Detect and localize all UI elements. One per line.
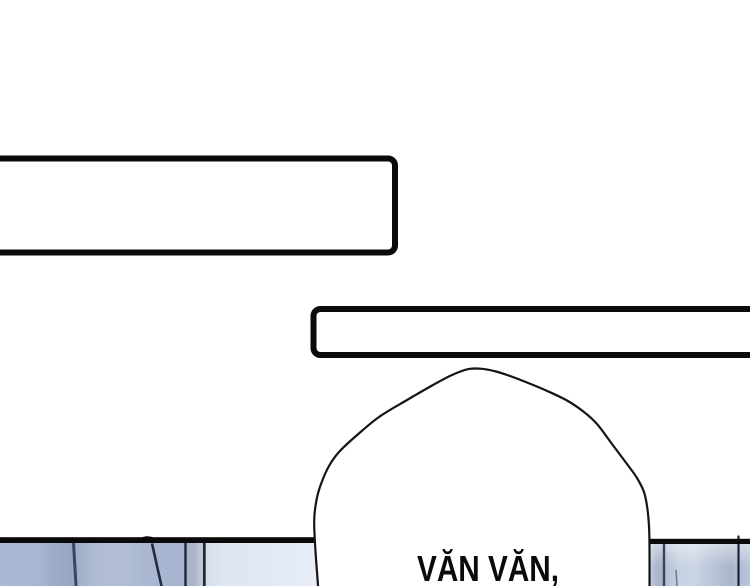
svg-text:VĂN VĂN,: VĂN VĂN,: [417, 548, 559, 586]
